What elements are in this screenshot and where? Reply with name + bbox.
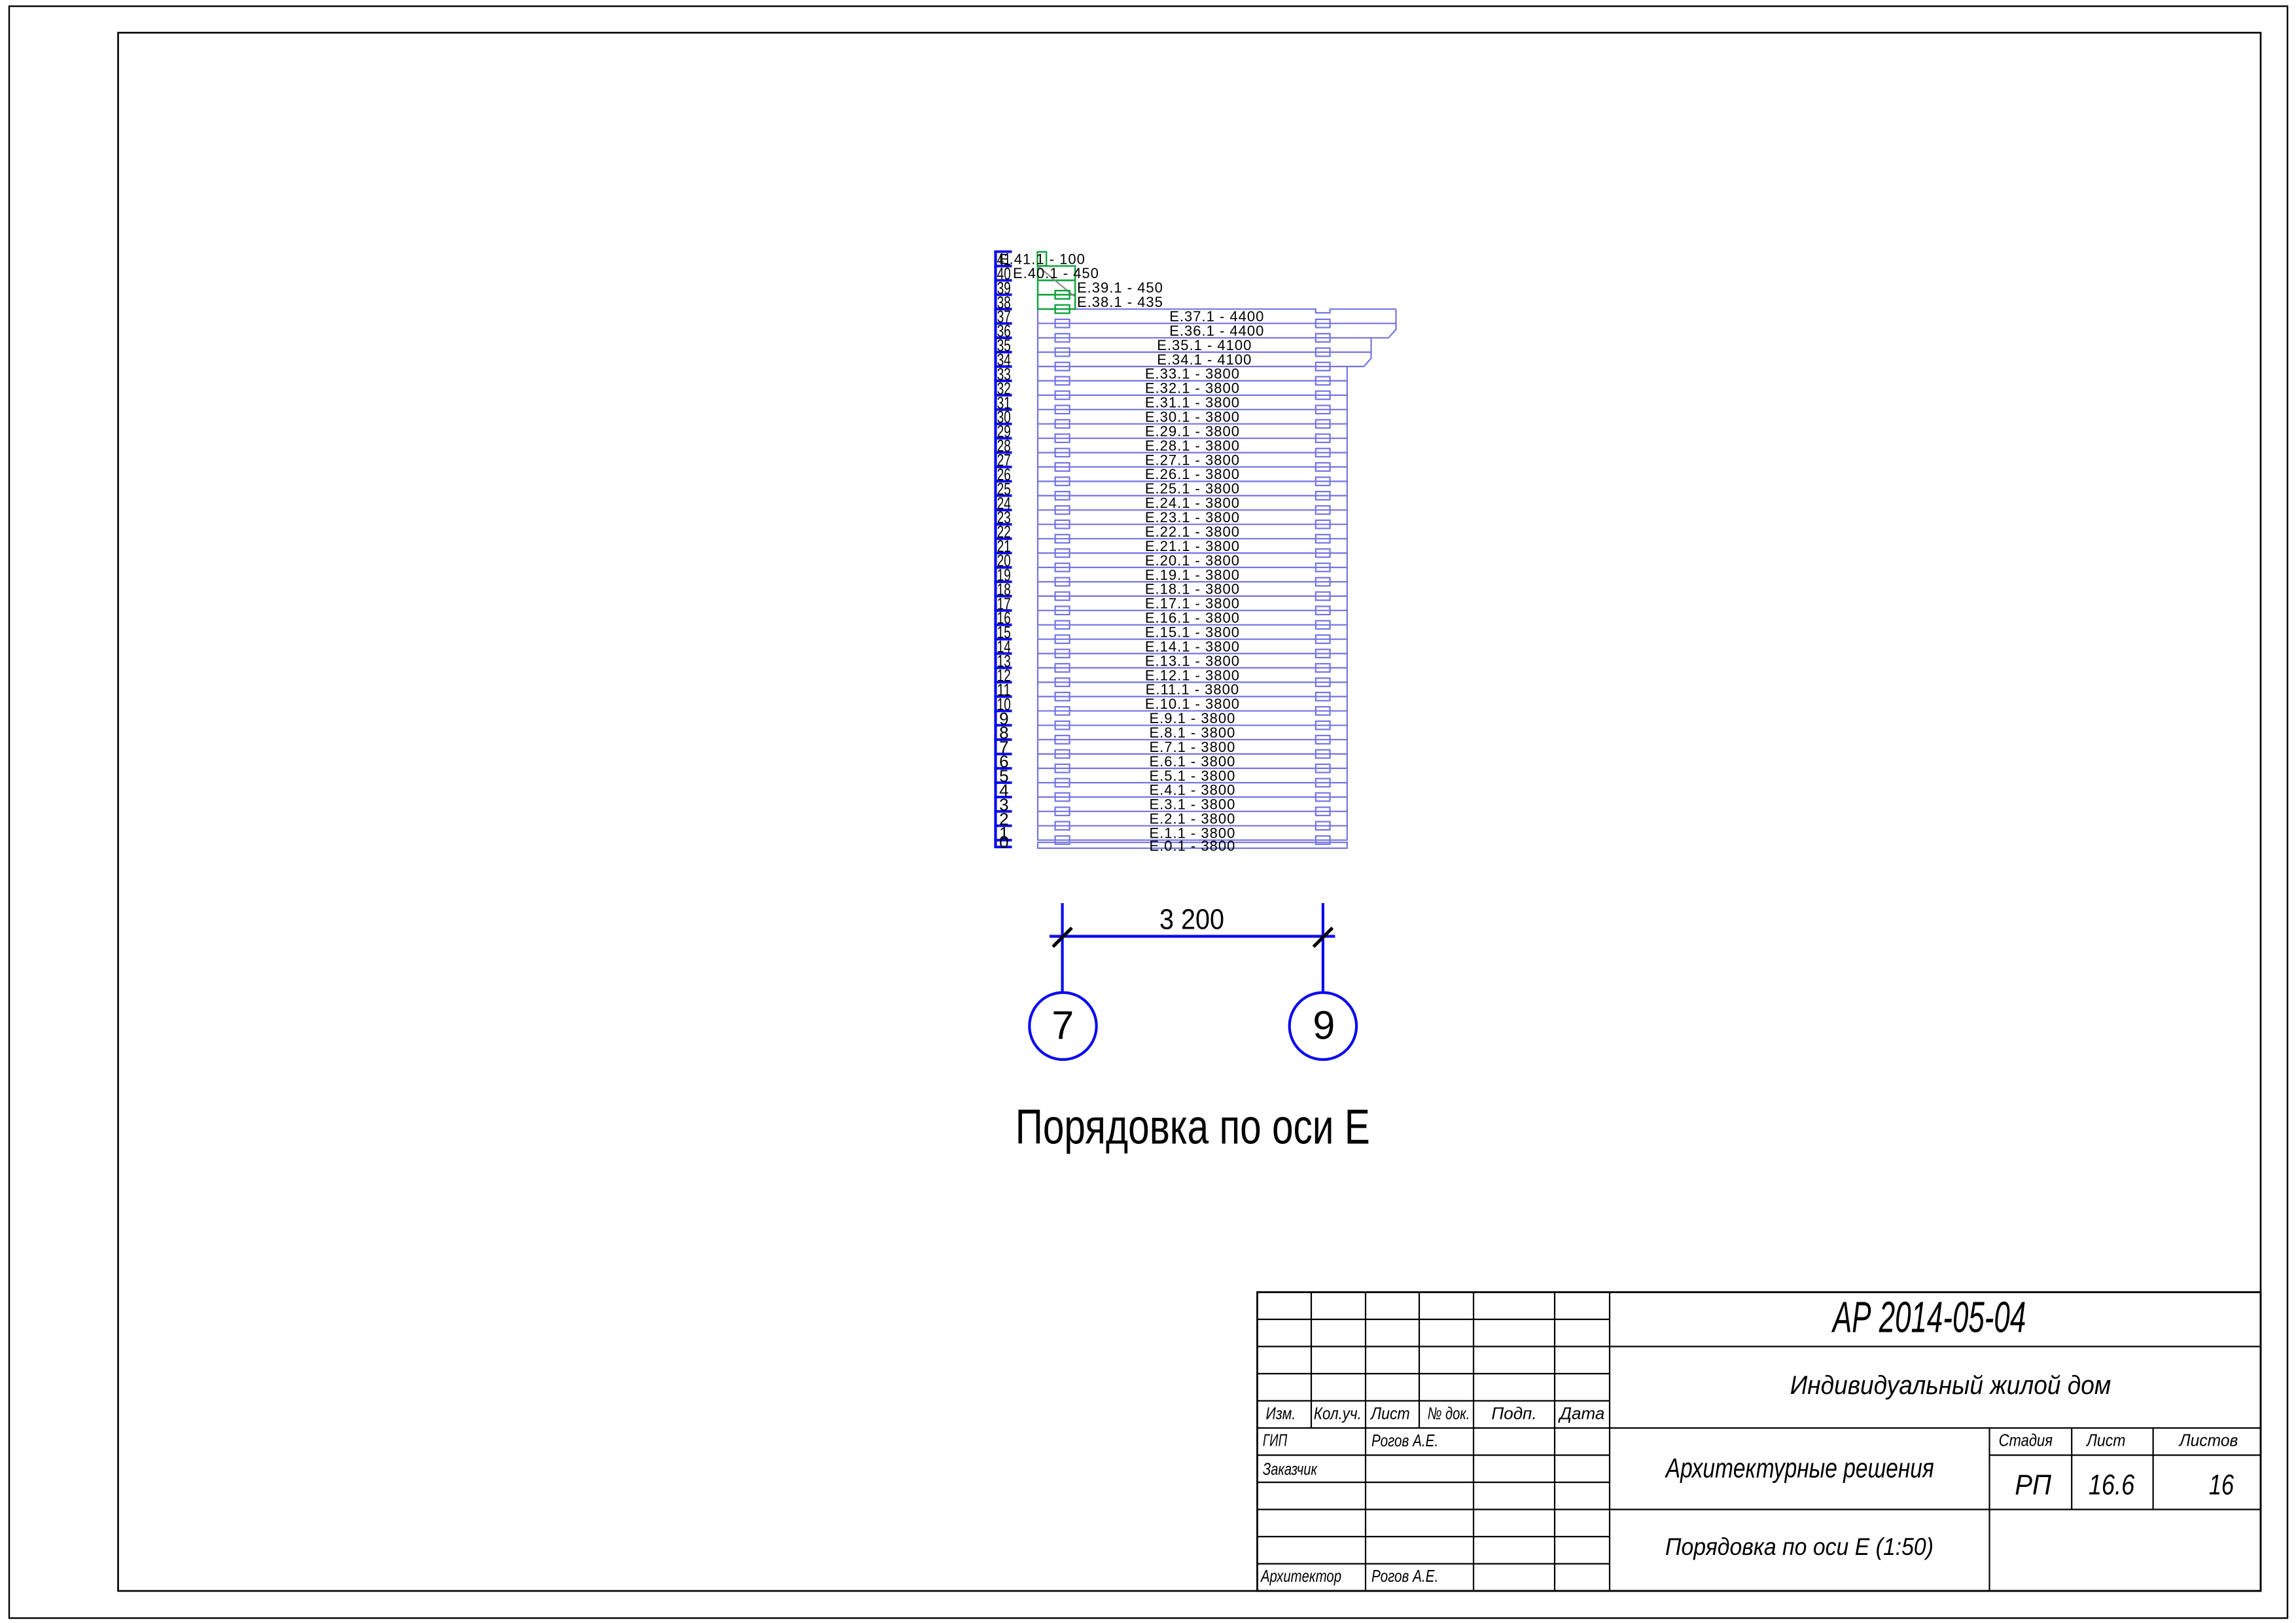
svg-text:Изм.: Изм. (1266, 1403, 1296, 1423)
svg-text:Лист: Лист (1369, 1403, 1409, 1423)
svg-text:Листов: Листов (2178, 1430, 2238, 1450)
svg-text:Подп.: Подп. (1491, 1403, 1536, 1423)
svg-text:Архитектурные решения: Архитектурные решения (1664, 1453, 1934, 1484)
svg-text:Е.19.1 - 3800: Е.19.1 - 3800 (1145, 567, 1240, 583)
svg-text:Е.34.1 - 4100: Е.34.1 - 4100 (1157, 351, 1252, 368)
svg-text:Е.33.1 - 3800: Е.33.1 - 3800 (1145, 366, 1240, 382)
svg-text:Архитектор: Архитектор (1260, 1566, 1341, 1586)
svg-text:Е.24.1 - 3800: Е.24.1 - 3800 (1145, 495, 1240, 511)
svg-text:Е.32.1 - 3800: Е.32.1 - 3800 (1145, 380, 1240, 397)
svg-text:Е.16.1 - 3800: Е.16.1 - 3800 (1145, 610, 1240, 626)
svg-text:Рогов А.Е.: Рогов А.Е. (1371, 1566, 1438, 1586)
svg-text:Е.28.1 - 3800: Е.28.1 - 3800 (1145, 437, 1240, 454)
svg-text:Е.10.1 - 3800: Е.10.1 - 3800 (1145, 696, 1240, 712)
svg-text:№ док.: № док. (1428, 1403, 1470, 1423)
svg-text:РП: РП (2015, 1469, 2051, 1501)
svg-text:Дата: Дата (1558, 1403, 1605, 1423)
svg-text:АР 2014-05-04: АР 2014-05-04 (1831, 1293, 2026, 1342)
svg-text:Е.18.1 - 3800: Е.18.1 - 3800 (1145, 581, 1240, 597)
svg-text:Е.20.1 - 3800: Е.20.1 - 3800 (1145, 552, 1240, 569)
svg-text:Е.26.1 - 3800: Е.26.1 - 3800 (1145, 466, 1240, 482)
svg-text:16.6: 16.6 (2089, 1469, 2135, 1501)
svg-text:Е.29.1 - 3800: Е.29.1 - 3800 (1145, 423, 1240, 440)
svg-text:Е.39.1 - 450: Е.39.1 - 450 (1077, 279, 1163, 296)
svg-text:Е.8.1 - 3800: Е.8.1 - 3800 (1149, 724, 1235, 741)
svg-text:Заказчик: Заказчик (1263, 1459, 1318, 1479)
svg-text:Е.13.1 - 3800: Е.13.1 - 3800 (1145, 652, 1240, 669)
svg-text:Е.3.1 - 3800: Е.3.1 - 3800 (1149, 796, 1235, 813)
svg-text:Е.14.1 - 3800: Е.14.1 - 3800 (1145, 638, 1240, 654)
svg-text:Е.5.1 - 3800: Е.5.1 - 3800 (1149, 768, 1235, 784)
svg-text:Е.7.1 - 3800: Е.7.1 - 3800 (1149, 739, 1235, 755)
svg-text:Е.9.1 - 3800: Е.9.1 - 3800 (1149, 710, 1235, 726)
svg-text:7: 7 (1051, 1003, 1074, 1047)
svg-text:Е.4.1 - 3800: Е.4.1 - 3800 (1149, 782, 1235, 798)
svg-text:Е.41.1 - 100: Е.41.1 - 100 (999, 251, 1086, 267)
svg-text:Е.21.1 - 3800: Е.21.1 - 3800 (1145, 538, 1240, 554)
svg-text:Е.36.1 - 4400: Е.36.1 - 4400 (1169, 323, 1264, 339)
svg-text:Е.15.1 - 3800: Е.15.1 - 3800 (1145, 624, 1240, 641)
svg-text:Е.6.1 - 3800: Е.6.1 - 3800 (1149, 753, 1235, 770)
svg-text:Е.35.1 - 4100: Е.35.1 - 4100 (1157, 337, 1252, 353)
svg-text:Е.11.1 - 3800: Е.11.1 - 3800 (1146, 681, 1239, 698)
svg-text:Е.31.1 - 3800: Е.31.1 - 3800 (1145, 395, 1240, 411)
svg-text:Рогов А.Е.: Рогов А.Е. (1371, 1431, 1438, 1450)
svg-text:Е.40.1 - 450: Е.40.1 - 450 (1013, 265, 1099, 281)
svg-text:Е.25.1 - 3800: Е.25.1 - 3800 (1145, 480, 1240, 497)
svg-text:Кол.уч.: Кол.уч. (1314, 1403, 1362, 1423)
svg-text:Е.2.1 - 3800: Е.2.1 - 3800 (1149, 811, 1235, 827)
svg-text:Порядовка по оси Е: Порядовка по оси Е (1016, 1099, 1370, 1154)
svg-text:3 200: 3 200 (1159, 904, 1224, 936)
svg-text:Е.17.1 - 3800: Е.17.1 - 3800 (1145, 596, 1240, 612)
svg-text:Е.23.1 - 3800: Е.23.1 - 3800 (1145, 509, 1240, 526)
svg-text:Порядовка по оси Е (1:50): Порядовка по оси Е (1:50) (1665, 1533, 1934, 1560)
svg-text:Лист: Лист (2085, 1430, 2125, 1450)
svg-text:16: 16 (2209, 1469, 2234, 1501)
svg-text:Е.12.1 - 3800: Е.12.1 - 3800 (1145, 667, 1240, 683)
svg-text:Е.27.1 - 3800: Е.27.1 - 3800 (1145, 452, 1240, 468)
svg-text:9: 9 (1313, 1003, 1335, 1047)
svg-text:Е.1.1 - 3800: Е.1.1 - 3800 (1149, 825, 1235, 842)
svg-text:Е.30.1 - 3800: Е.30.1 - 3800 (1145, 409, 1240, 425)
svg-text:Е.37.1 - 4400: Е.37.1 - 4400 (1169, 308, 1264, 325)
svg-text:Е.22.1 - 3800: Е.22.1 - 3800 (1145, 524, 1240, 540)
svg-text:Е.38.1 - 435: Е.38.1 - 435 (1077, 294, 1163, 310)
svg-text:Стадия: Стадия (1999, 1430, 2053, 1450)
svg-text:Индивидуальный жилой дом: Индивидуальный жилой дом (1790, 1371, 2111, 1400)
svg-text:ГИП: ГИП (1263, 1431, 1287, 1450)
